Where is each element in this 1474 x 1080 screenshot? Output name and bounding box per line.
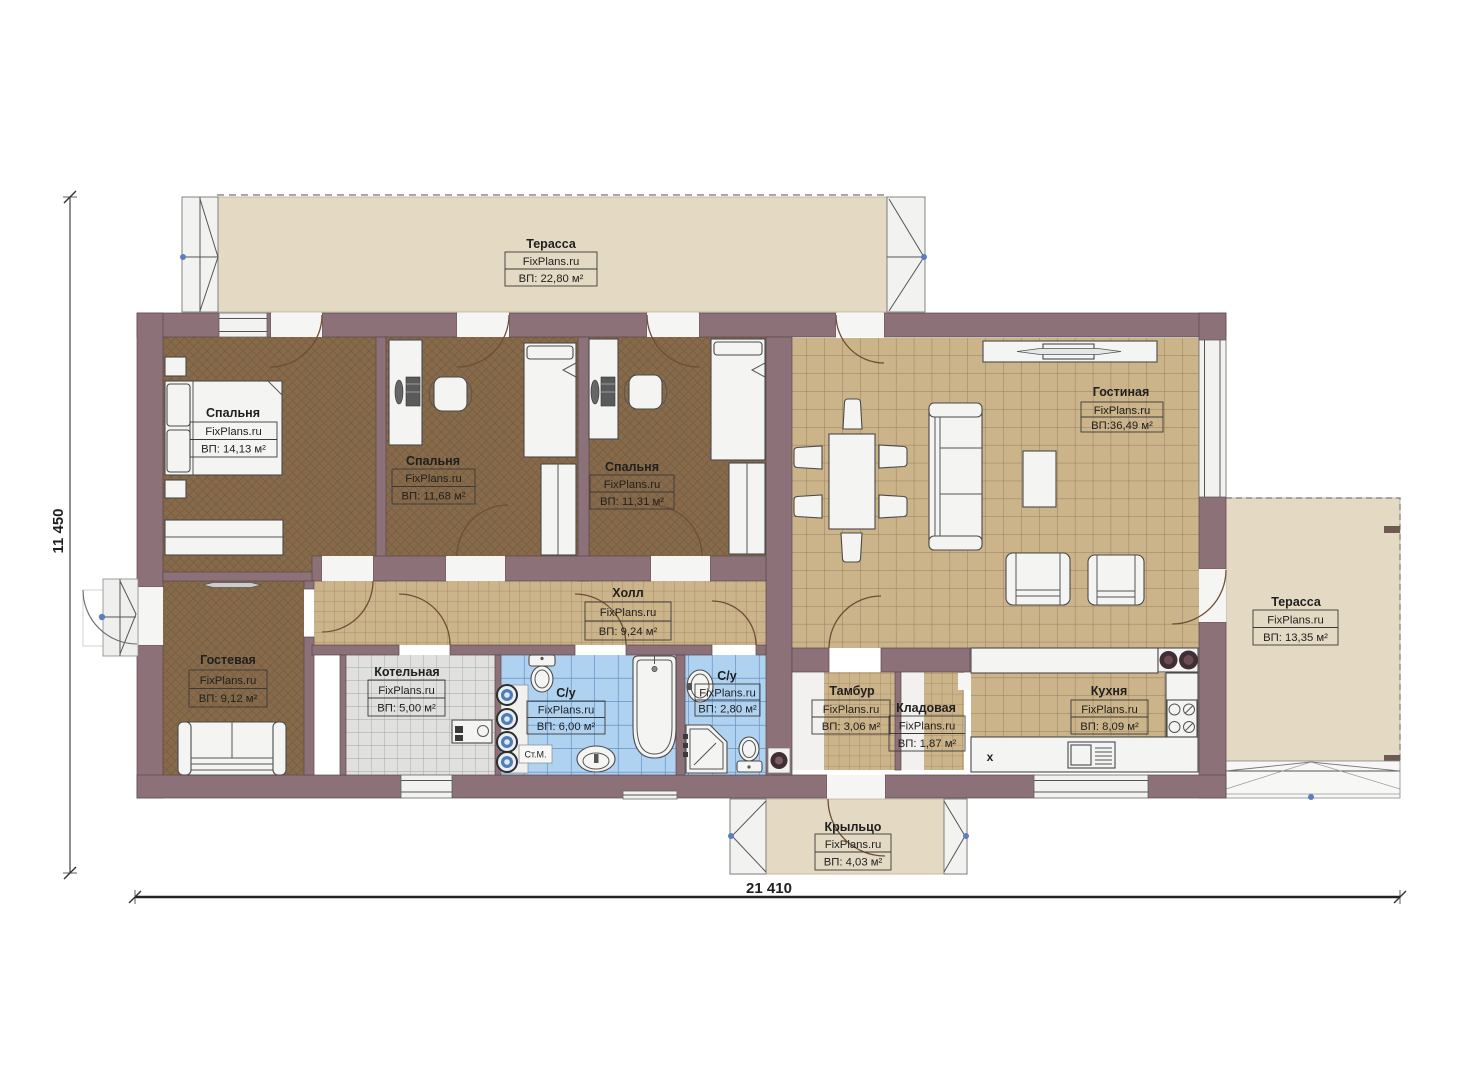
svg-text:FixPlans.ru: FixPlans.ru [523,256,580,268]
svg-text:Холл: Холл [612,586,643,600]
svg-text:ВП: 2,80 м²: ВП: 2,80 м² [698,704,757,716]
svg-text:ВП: 6,00 м²: ВП: 6,00 м² [537,721,596,733]
svg-text:Ст.М.: Ст.М. [524,750,546,760]
svg-text:Терасса: Терасса [526,237,577,251]
svg-text:ВП: 8,09 м²: ВП: 8,09 м² [1080,721,1139,733]
svg-text:FixPlans.ru: FixPlans.ru [823,704,880,716]
svg-text:x: x [987,750,994,764]
svg-text:Тамбур: Тамбур [829,684,875,698]
svg-text:ВП: 11,31 м²: ВП: 11,31 м² [600,496,664,508]
svg-text:FixPlans.ru: FixPlans.ru [1267,615,1324,627]
svg-text:FixPlans.ru: FixPlans.ru [405,473,462,485]
svg-text:Гостиная: Гостиная [1093,385,1150,399]
svg-text:ВП: 9,24 м²: ВП: 9,24 м² [599,626,658,638]
svg-text:С/у: С/у [556,686,576,700]
svg-text:FixPlans.ru: FixPlans.ru [200,675,257,687]
svg-text:ВП: 5,00 м²: ВП: 5,00 м² [377,703,436,715]
svg-text:FixPlans.ru: FixPlans.ru [1081,704,1138,716]
svg-text:FixPlans.ru: FixPlans.ru [600,607,657,619]
svg-text:FixPlans.ru: FixPlans.ru [825,839,882,851]
svg-text:ВП: 1,87 м²: ВП: 1,87 м² [898,738,957,750]
svg-text:FixPlans.ru: FixPlans.ru [1094,405,1151,417]
svg-text:ВП: 13,35 м²: ВП: 13,35 м² [1263,632,1328,644]
svg-text:Спальня: Спальня [406,454,460,468]
svg-text:Кладовая: Кладовая [896,701,956,715]
svg-text:ВП: 22,80 м²: ВП: 22,80 м² [519,273,584,285]
svg-text:FixPlans.ru: FixPlans.ru [205,426,262,438]
svg-text:ВП:36,49 м²: ВП:36,49 м² [1091,420,1153,432]
svg-text:21 410: 21 410 [746,880,792,897]
svg-text:С/у: С/у [717,669,737,683]
svg-text:ВП: 11,68 м²: ВП: 11,68 м² [401,491,465,503]
svg-text:Крыльцо: Крыльцо [825,820,882,834]
svg-text:ВП: 14,13 м²: ВП: 14,13 м² [201,444,266,456]
svg-text:ВП: 4,03 м²: ВП: 4,03 м² [824,857,883,869]
svg-text:ВП: 9,12 м²: ВП: 9,12 м² [199,693,258,705]
svg-text:ВП: 3,06 м²: ВП: 3,06 м² [822,721,881,733]
svg-text:Гостевая: Гостевая [200,653,256,667]
svg-text:FixPlans.ru: FixPlans.ru [604,479,661,491]
svg-text:Кухня: Кухня [1091,684,1128,698]
svg-text:FixPlans.ru: FixPlans.ru [538,705,595,717]
svg-text:Котельная: Котельная [374,665,439,679]
svg-text:FixPlans.ru: FixPlans.ru [378,685,435,697]
svg-text:FixPlans.ru: FixPlans.ru [899,721,956,733]
svg-text:11 450: 11 450 [50,508,67,553]
svg-text:Спальня: Спальня [605,460,659,474]
svg-text:FixPlans.ru: FixPlans.ru [699,688,756,700]
svg-text:Терасса: Терасса [1271,595,1322,609]
svg-text:Спальня: Спальня [206,406,260,420]
